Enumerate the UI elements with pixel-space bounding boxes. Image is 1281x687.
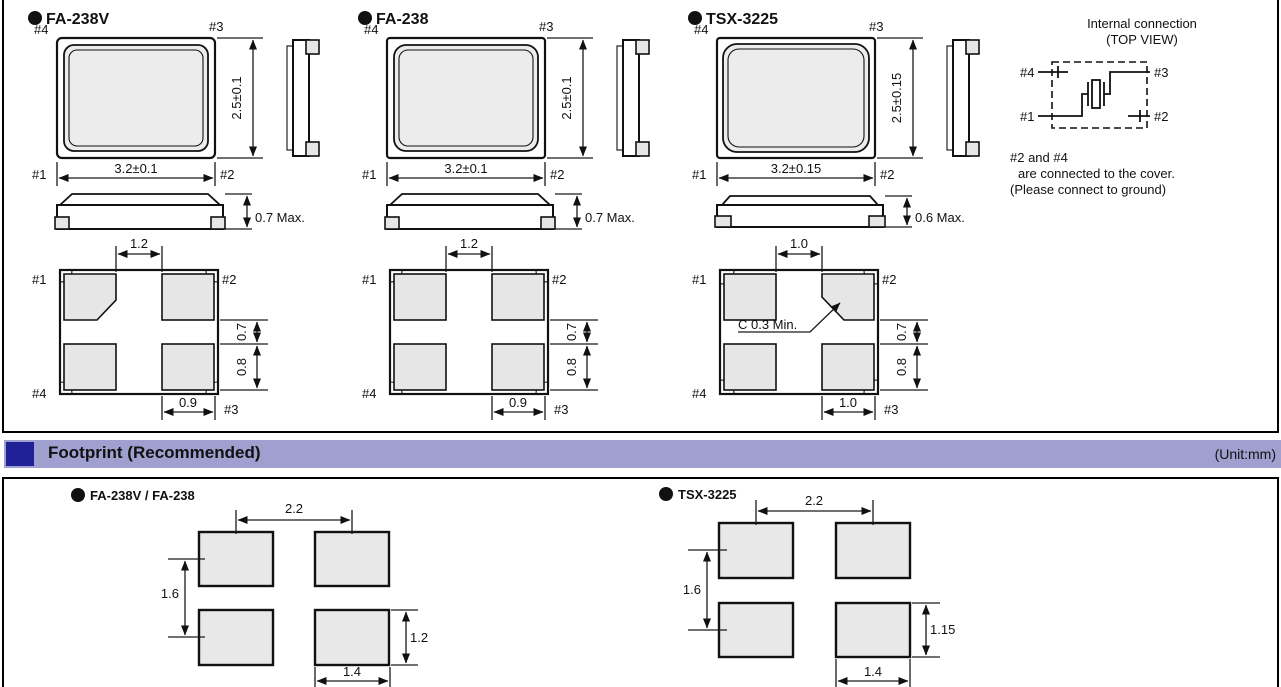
top-view: #4 #3 #1 #2 3.2±0.1 2.5±0.1: [32, 19, 263, 186]
pin-label: #4: [32, 386, 46, 401]
internal-connection-diagram: Internal connection (TOP VIEW) #4 #3 #1 …: [1002, 10, 1278, 210]
side-view: [287, 40, 319, 156]
unit-label: (Unit:mm): [1215, 446, 1276, 462]
height-dim-label: 2.5±0.15: [889, 73, 904, 124]
pad-2: [162, 274, 214, 320]
crystal-circuit: [1038, 66, 1150, 122]
pad-width-label: 1.4: [864, 664, 882, 679]
pin-label: #1: [1020, 109, 1034, 124]
side-view: [617, 40, 649, 156]
bullet-icon: [659, 487, 673, 501]
footprint-title-text: FA-238V / FA-238: [90, 488, 195, 503]
pad-height-dim-label: 0.8: [894, 358, 909, 376]
pad-3: [492, 344, 544, 390]
dim-extension-lines: [885, 196, 912, 227]
footprint-pad: [836, 523, 910, 578]
width-dim-label: 3.2±0.1: [114, 161, 157, 176]
pin-label: #3: [224, 402, 238, 417]
cover-note-line3: (Please connect to ground): [1010, 182, 1166, 197]
width-dim-label: 3.2±0.15: [771, 161, 822, 176]
bottom-view: C 0.3 Min. #1 #2 #4 #3 1.0 0.7 0.8 1.0: [692, 236, 928, 420]
datasheet-page: FA-238V #4 #3 #1 #2 3.2±0.1 2.5±0.1: [0, 0, 1281, 687]
pad-3: [822, 344, 874, 390]
pin-label: #4: [34, 22, 48, 37]
profile-pad: [715, 216, 731, 227]
pin-label: #4: [692, 386, 706, 401]
footprint-section-header: Footprint (Recommended) (Unit:mm): [4, 440, 1281, 468]
package-title-text: FA-238V: [46, 11, 109, 28]
profile-body: [717, 205, 883, 227]
footprint-fa-238-drawing: FA-238V / FA-238 2.2 1.6 1.2 1.4: [60, 482, 520, 687]
height-dim-label: 2.5±0.1: [229, 76, 244, 119]
pin-label: #2: [220, 167, 234, 182]
pad-width-dim-label: 0.9: [179, 395, 197, 410]
pad-width-label: 1.4: [343, 664, 361, 679]
height-dim-label: 2.5±0.1: [559, 76, 574, 119]
profile-lid: [722, 196, 878, 205]
top-gap-dim-label: 1.2: [130, 236, 148, 251]
package-title-text: TSX-3225: [706, 11, 778, 28]
cover-note-line2: are connected to the cover.: [1018, 166, 1175, 181]
footprint-section-title: Footprint (Recommended): [48, 443, 261, 463]
profile-pad: [869, 216, 885, 227]
footprint-pads: [719, 523, 910, 657]
side-view: [947, 40, 979, 156]
pad-width-dim-label: 0.9: [509, 395, 527, 410]
pin-label: #4: [364, 22, 378, 37]
pin-label: #2: [880, 167, 894, 182]
side-gap-dim-label: 0.7: [894, 323, 909, 341]
side-pad: [636, 142, 649, 156]
profile-pad: [211, 217, 225, 229]
top-view: #4 #3 #1 #2 3.2±0.1 2.5±0.1: [362, 19, 593, 186]
internal-connection-subtitle: (TOP VIEW): [1106, 32, 1178, 47]
side-body: [293, 40, 309, 156]
pad-1: [724, 274, 776, 320]
footprint-pad: [315, 610, 389, 665]
side-pad: [966, 40, 979, 54]
pin-label: #1: [362, 167, 376, 182]
footprint-title-text: TSX-3225: [678, 487, 737, 502]
profile-view: 0.6 Max.: [715, 196, 965, 227]
pin-label: #1: [32, 272, 46, 287]
pitch-x-label: 2.2: [805, 493, 823, 508]
footprint-pads: [199, 532, 389, 665]
side-pad: [306, 40, 319, 54]
side-pad: [966, 142, 979, 156]
side-body: [623, 40, 639, 156]
pin-label: #1: [362, 272, 376, 287]
pin-label: #3: [209, 19, 223, 34]
profile-height-label: 0.6 Max.: [915, 210, 965, 225]
pin-label: #2: [550, 167, 564, 182]
pin-label: #2: [882, 272, 896, 287]
package-lid: [64, 45, 208, 151]
pitch-y-label: 1.6: [683, 582, 701, 597]
top-gap-dim-label: 1.2: [460, 236, 478, 251]
profile-pad: [541, 217, 555, 229]
pitch-y-label: 1.6: [161, 586, 179, 601]
footprint-pad: [315, 532, 389, 586]
bottom-view: #1 #2 #4 #3 1.2 0.7 0.8 0.9: [32, 236, 268, 420]
profile-pad: [385, 217, 399, 229]
internal-connection-title: Internal connection: [1087, 16, 1197, 31]
pin-label: #4: [694, 22, 708, 37]
pad-3: [162, 344, 214, 390]
pad-height-label: 1.2: [410, 630, 428, 645]
pad-4: [724, 344, 776, 390]
profile-lid: [60, 194, 220, 205]
pin-label: #1: [32, 167, 46, 182]
bullet-icon: [71, 488, 85, 502]
pad-height-label: 1.15: [930, 622, 955, 637]
cover-note-line1: #2 and #4: [1010, 150, 1068, 165]
pad-height-dim-label: 0.8: [234, 358, 249, 376]
pin-label: #2: [552, 272, 566, 287]
profile-lid: [390, 194, 550, 205]
side-gap-dim-label: 0.7: [234, 323, 249, 341]
pad-1: [394, 274, 446, 320]
pad-height-dim-label: 0.8: [564, 358, 579, 376]
chamfer-note-label: C 0.3 Min.: [738, 317, 797, 332]
dim-extension-lines: [555, 194, 582, 229]
profile-body: [387, 205, 553, 229]
pin-label: #3: [554, 402, 568, 417]
pad-width-dim-label: 1.0: [839, 395, 857, 410]
pitch-x-label: 2.2: [285, 501, 303, 516]
side-gap-dim-label: 0.7: [564, 323, 579, 341]
profile-height-label: 0.7 Max.: [255, 210, 305, 225]
footprint-pad: [719, 603, 793, 657]
pin-label: #2: [1154, 109, 1168, 124]
pin3-wire: [1104, 72, 1150, 94]
pin-label: #3: [884, 402, 898, 417]
profile-pad: [55, 217, 69, 229]
footprint-tsx-3225-drawing: TSX-3225 2.2 1.6 1.15 1.4: [630, 482, 1090, 687]
crystal-body: [1092, 80, 1100, 108]
footprint-pad: [199, 532, 273, 586]
footprint-pad: [836, 603, 910, 657]
pin-label: #3: [1154, 65, 1168, 80]
footprint-pad: [719, 523, 793, 578]
pin-label: #3: [869, 19, 883, 34]
profile-view: 0.7 Max.: [55, 194, 305, 229]
bottom-view: #1 #2 #4 #3 1.2 0.7 0.8 0.9: [362, 236, 598, 420]
width-dim-label: 3.2±0.1: [444, 161, 487, 176]
pin-label: #4: [1020, 65, 1034, 80]
profile-view: 0.7 Max.: [385, 194, 635, 229]
pin-label: #4: [362, 386, 376, 401]
profile-body: [57, 205, 223, 229]
package-lid: [723, 44, 869, 152]
pad-2: [492, 274, 544, 320]
package-lid: [394, 45, 538, 151]
dim-extension-lines: [225, 194, 252, 229]
package-tsx-3225-drawing: TSX-3225 #4 #3 #1 #2 3.2±0.15 2.5±0.15: [660, 0, 995, 426]
top-gap-dim-label: 1.0: [790, 236, 808, 251]
footprint-pad: [199, 610, 273, 665]
package-title-text: FA-238: [376, 11, 429, 28]
side-pad: [306, 142, 319, 156]
pad-4: [64, 344, 116, 390]
header-accent-square: [6, 442, 34, 466]
pin1-wire: [1038, 94, 1088, 116]
side-body: [953, 40, 969, 156]
profile-height-label: 0.7 Max.: [585, 210, 635, 225]
pin-label: #1: [692, 167, 706, 182]
pad-4: [394, 344, 446, 390]
top-view: #4 #3 #1 #2 3.2±0.15 2.5±0.15: [692, 19, 923, 186]
package-fa-238-drawing: FA-238 #4 #3 #1 #2 3.2±0.1 2.5±0.1: [330, 0, 665, 426]
pin-label: #1: [692, 272, 706, 287]
pin-label: #2: [222, 272, 236, 287]
pin-label: #3: [539, 19, 553, 34]
package-fa-238v-drawing: FA-238V #4 #3 #1 #2 3.2±0.1 2.5±0.1: [0, 0, 335, 426]
side-pad: [636, 40, 649, 54]
